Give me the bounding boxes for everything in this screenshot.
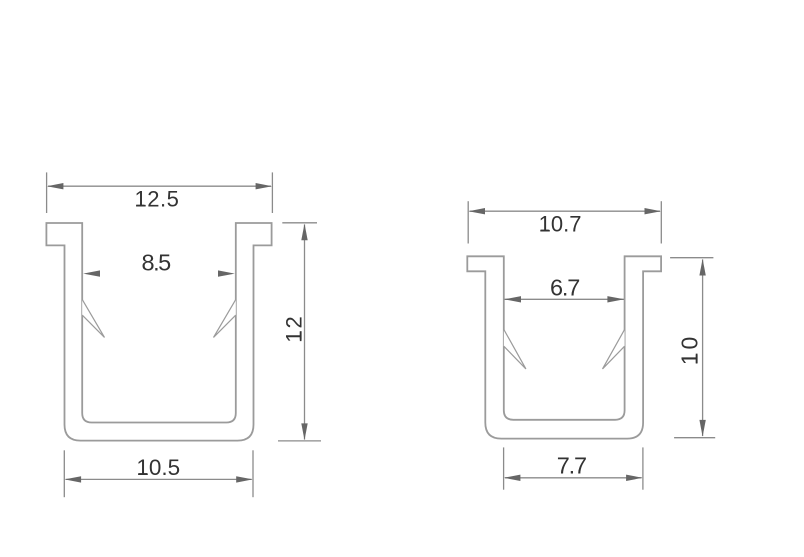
svg-text:10: 10 [677, 334, 703, 366]
svg-text:10.5: 10.5 [136, 455, 180, 480]
svg-text:6.7: 6.7 [550, 275, 579, 301]
svg-text:12.5: 12.5 [134, 186, 179, 211]
svg-text:8.5: 8.5 [142, 250, 172, 276]
svg-text:12: 12 [282, 314, 307, 342]
svg-text:7.7: 7.7 [557, 453, 586, 479]
svg-text:10.7: 10.7 [539, 211, 582, 236]
